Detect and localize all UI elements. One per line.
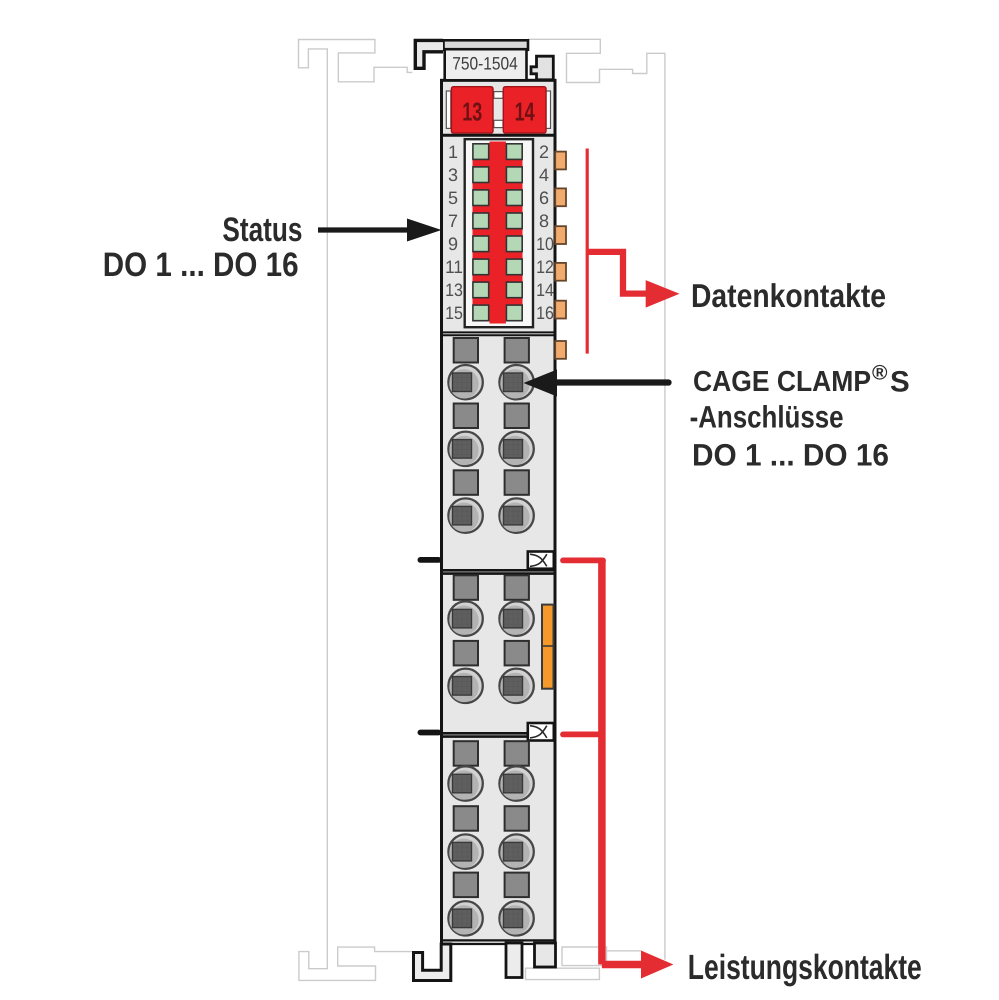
svg-text:DO 1 ... DO 16: DO 1 ... DO 16 xyxy=(692,438,889,473)
svg-text:13: 13 xyxy=(445,280,463,300)
svg-text:S: S xyxy=(890,366,910,399)
svg-text:14: 14 xyxy=(515,97,535,127)
svg-text:7: 7 xyxy=(448,211,458,231)
svg-text:16: 16 xyxy=(536,303,554,323)
svg-text:11: 11 xyxy=(445,257,463,277)
svg-text:5: 5 xyxy=(448,188,458,208)
svg-text:14: 14 xyxy=(536,280,554,300)
svg-text:DO 1 ... DO 16: DO 1 ... DO 16 xyxy=(103,246,299,284)
svg-text:6: 6 xyxy=(539,188,549,208)
svg-text:10: 10 xyxy=(536,234,554,254)
svg-text:12: 12 xyxy=(536,257,554,277)
svg-text:Status: Status xyxy=(222,211,302,249)
svg-text:15: 15 xyxy=(445,303,463,323)
svg-text:Leistungskontakte: Leistungskontakte xyxy=(688,948,922,987)
svg-text:®: ® xyxy=(872,361,888,384)
svg-text:1: 1 xyxy=(448,142,458,162)
svg-text:13: 13 xyxy=(462,97,482,127)
svg-text:Datenkontakte: Datenkontakte xyxy=(691,277,886,314)
svg-text:-Anschlüsse: -Anschlüsse xyxy=(690,400,844,435)
svg-text:9: 9 xyxy=(448,234,458,254)
svg-text:3: 3 xyxy=(448,165,458,185)
svg-text:CAGE CLAMP: CAGE CLAMP xyxy=(693,366,871,398)
svg-text:8: 8 xyxy=(539,211,549,231)
svg-text:2: 2 xyxy=(539,142,549,162)
svg-text:750-1504: 750-1504 xyxy=(452,53,518,73)
svg-text:4: 4 xyxy=(539,165,549,185)
